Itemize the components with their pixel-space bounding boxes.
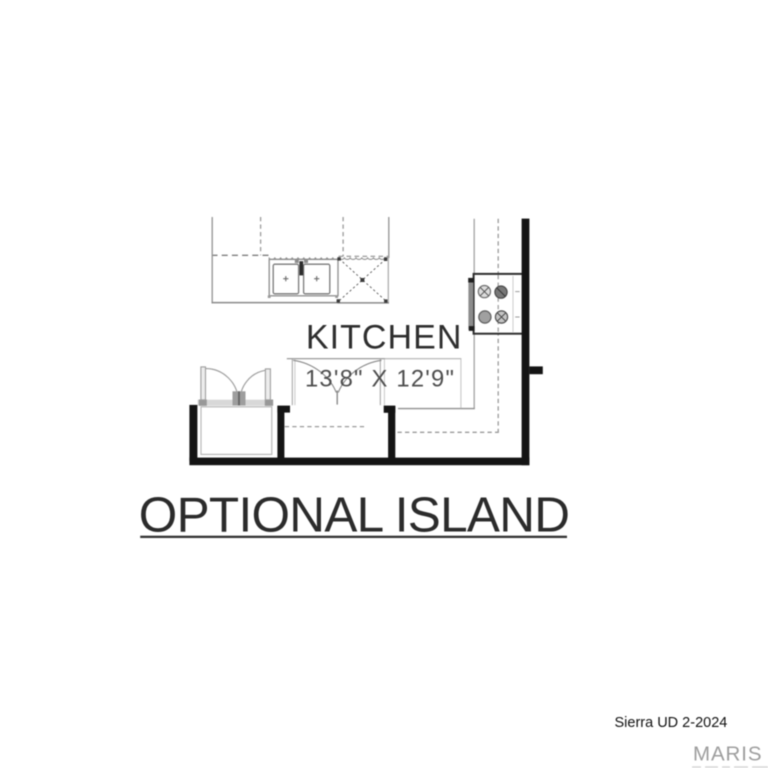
svg-text:MARIS: MARIS — [693, 743, 762, 766]
svg-text:Sierra UD 2-2024: Sierra UD 2-2024 — [615, 715, 728, 731]
svg-text:OPTIONAL ISLAND: OPTIONAL ISLAND — [139, 488, 570, 543]
svg-text:KITCHEN: KITCHEN — [306, 318, 463, 356]
svg-text:13'8" X 12'9": 13'8" X 12'9" — [305, 365, 455, 392]
